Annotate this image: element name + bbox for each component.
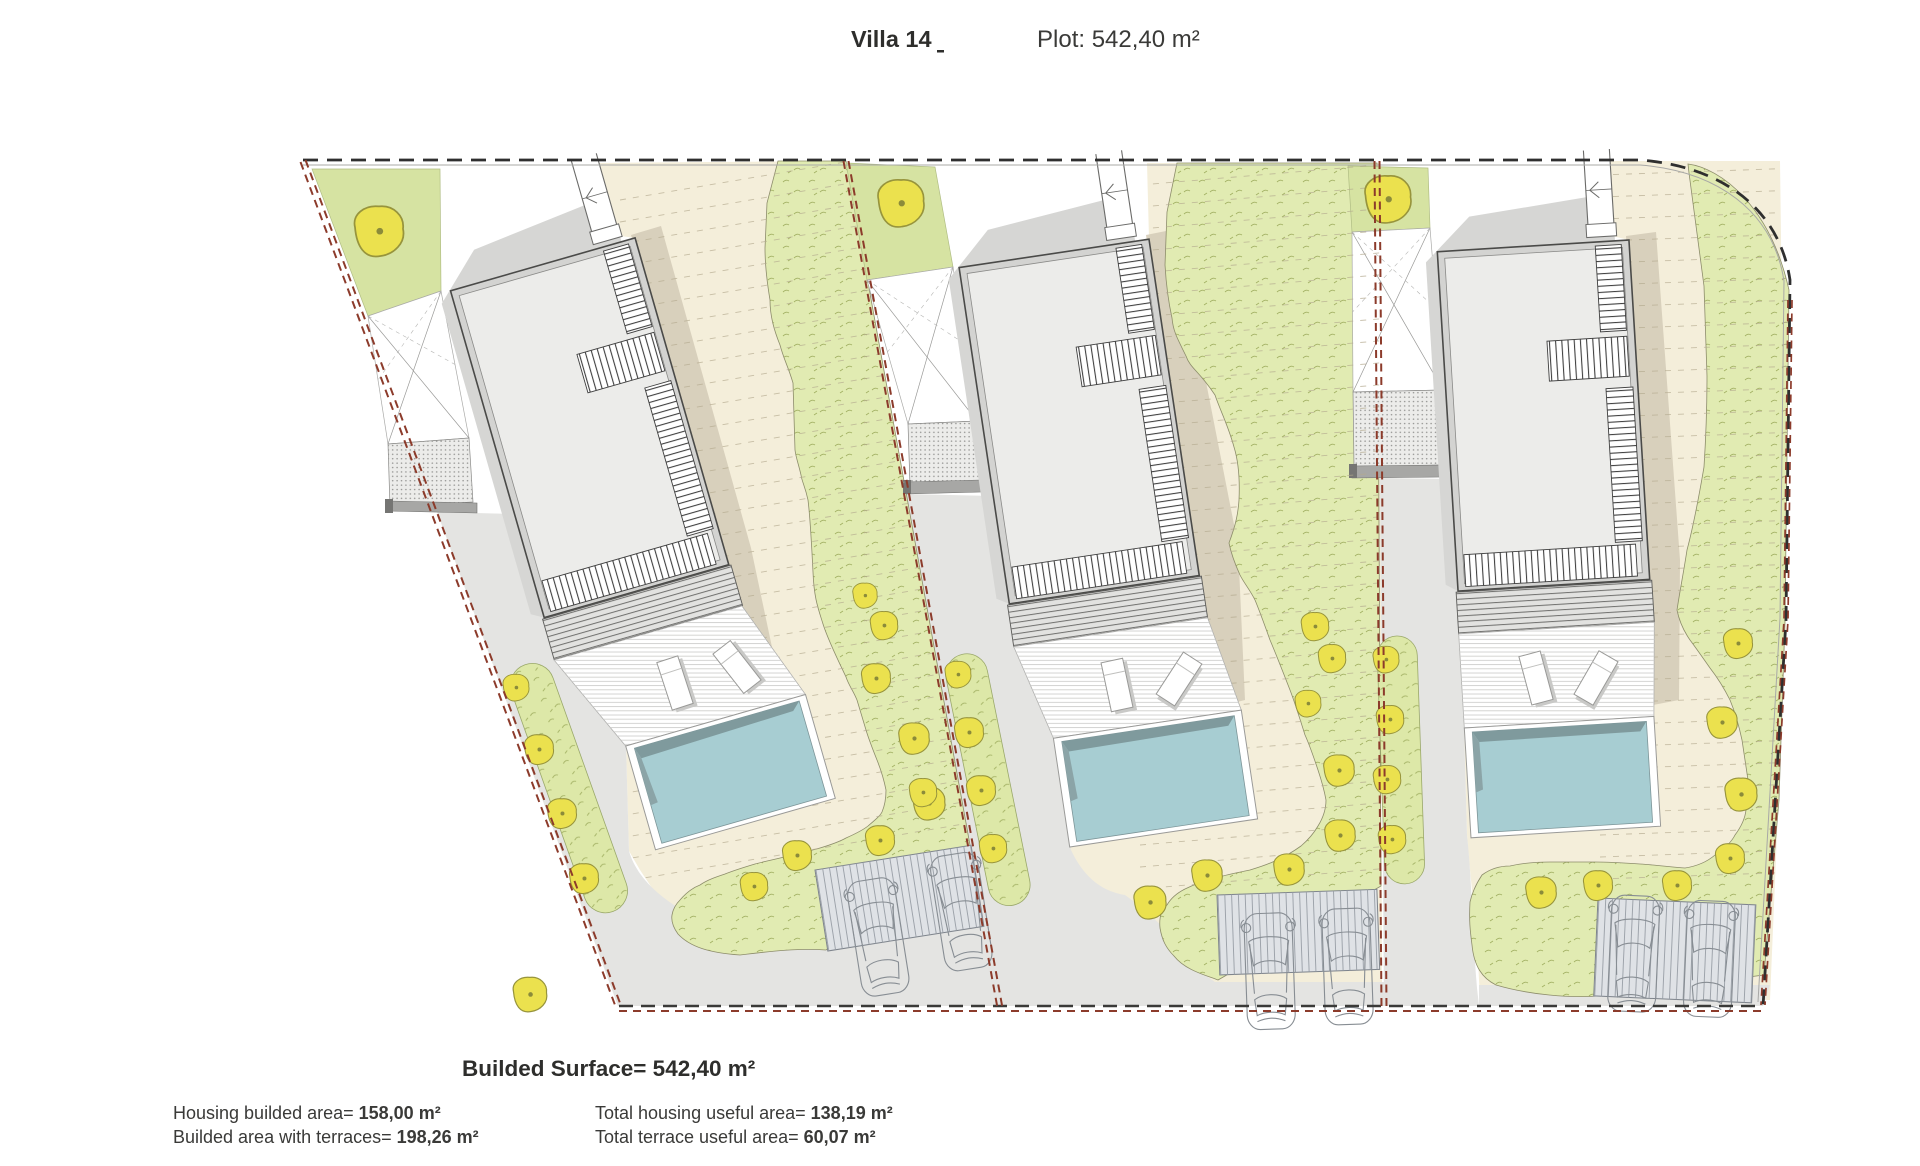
svg-text:Builded Surface= 542,40 m²: Builded Surface= 542,40 m² [462,1056,756,1081]
svg-text:Villa 14: Villa 14 [851,26,932,52]
svg-text:Plot: 542,40 m²: Plot: 542,40 m² [1037,26,1200,53]
svg-text:Total housing useful area= 138: Total housing useful area= 138,19 m² [595,1103,893,1123]
svg-text:Total terrace useful area= 60,: Total terrace useful area= 60,07 m² [595,1127,876,1147]
svg-text:Housing builded area= 158,00 m: Housing builded area= 158,00 m² [173,1103,441,1123]
svg-text:Builded area with terraces= 19: Builded area with terraces= 198,26 m² [173,1127,479,1147]
